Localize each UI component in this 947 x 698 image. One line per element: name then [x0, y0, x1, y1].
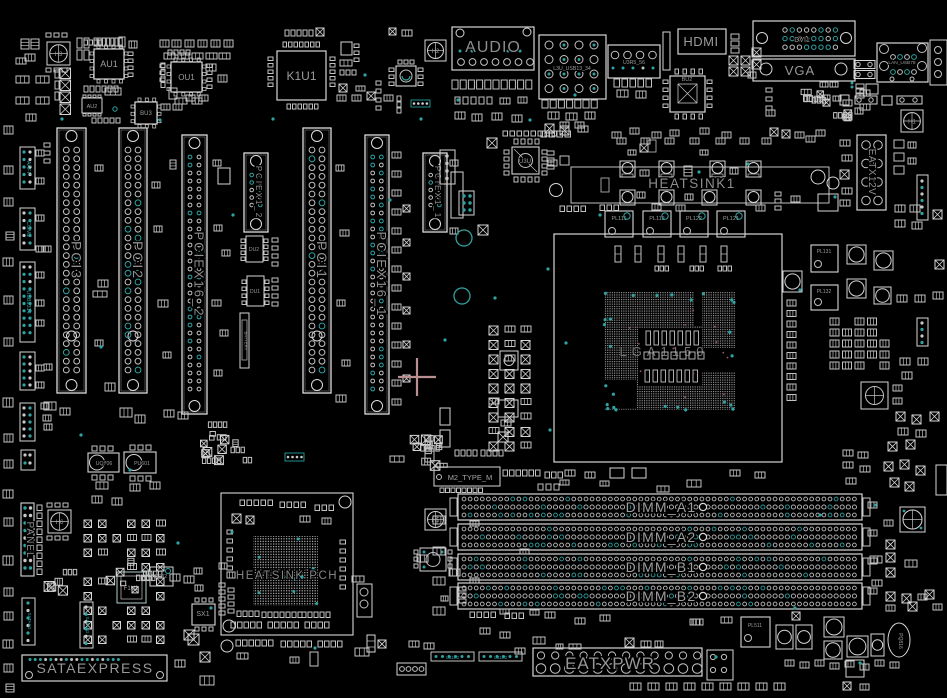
svg-text:PL132: PL132 — [817, 289, 832, 295]
svg-text:DIMM_A1: DIMM_A1 — [626, 499, 697, 515]
svg-text:PL121: PL121 — [723, 216, 739, 222]
svg-text:AUDIO: AUDIO — [465, 39, 521, 56]
svg-text:BATTERY: BATTERY — [244, 332, 249, 351]
svg-text:PCIEX16_1: PCIEX16_1 — [374, 232, 389, 318]
svg-text:M2_TYPE_M: M2_TYPE_M — [448, 473, 493, 482]
svg-text:U3U: U3U — [519, 159, 531, 165]
svg-text:DU2: DU2 — [249, 247, 259, 253]
svg-text:PCIEX16_2: PCIEX16_2 — [192, 232, 207, 318]
svg-text:DVI1: DVI1 — [794, 37, 810, 44]
svg-text:PL122: PL122 — [686, 216, 702, 222]
svg-text:BU2: BU2 — [682, 77, 693, 83]
svg-text:DU1: DU1 — [250, 289, 260, 295]
svg-text:U31G2: U31G2 — [494, 655, 508, 660]
svg-text:PCIEX1_2: PCIEX1_2 — [254, 166, 263, 219]
svg-text:U3R5_56: U3R5_56 — [623, 60, 645, 66]
svg-text:H3: H3 — [55, 52, 63, 58]
svg-text:PL131: PL131 — [817, 249, 832, 255]
svg-text:PANEL: PANEL — [24, 521, 35, 558]
svg-text:USB1314: USB1314 — [25, 290, 31, 314]
svg-text:COM1: COM1 — [25, 221, 31, 237]
svg-text:DIMM_A2: DIMM_A2 — [626, 529, 697, 545]
svg-text:PCI1: PCI1 — [314, 241, 330, 280]
svg-text:LAN_USB78: LAN_USB78 — [888, 60, 916, 66]
svg-text:DIMM_B2: DIMM_B2 — [626, 588, 697, 604]
svg-text:PQ816: PQ816 — [897, 633, 903, 649]
svg-text:SATAEXPRESS: SATAEXPRESS — [36, 660, 153, 676]
svg-text:HDMI: HDMI — [683, 34, 718, 49]
svg-text:AAFP: AAFP — [25, 161, 31, 176]
svg-text:PCI2: PCI2 — [130, 241, 146, 280]
svg-text:H1: H1 — [908, 120, 916, 126]
svg-text:H6: H6 — [56, 520, 64, 526]
svg-text:EATXPWR: EATXPWR — [565, 654, 655, 673]
svg-text:SATA6G: SATA6G — [27, 612, 32, 630]
svg-text:EATX12V: EATX12V — [866, 149, 877, 196]
svg-text:PCIEX1_1: PCIEX1_1 — [433, 166, 442, 219]
svg-text:OU1: OU1 — [178, 73, 195, 82]
svg-text:AU2: AU2 — [87, 104, 98, 110]
svg-text:PCI3: PCI3 — [69, 241, 85, 280]
svg-text:L3U_USB13_34: L3U_USB13_34 — [553, 66, 591, 72]
svg-text:VGA: VGA — [785, 63, 815, 78]
svg-text:SX1: SX1 — [196, 611, 209, 618]
svg-text:K1U1: K1U1 — [286, 69, 316, 83]
svg-text:AU1: AU1 — [100, 59, 118, 69]
svg-text:DIMM_B1: DIMM_B1 — [626, 559, 697, 575]
svg-text:PU601: PU601 — [134, 461, 150, 467]
svg-text:HEATSINK1: HEATSINK1 — [648, 176, 736, 191]
svg-text:H2: H2 — [432, 49, 440, 55]
svg-text:U31G2: U31G2 — [446, 655, 460, 660]
svg-text:BU3: BU3 — [140, 111, 152, 117]
svg-text:SATA6G: SATA6G — [85, 616, 90, 634]
svg-text:UQ706: UQ706 — [96, 461, 113, 467]
svg-text:PL511: PL511 — [748, 623, 762, 629]
svg-text:HEATSINK PCH: HEATSINK PCH — [236, 570, 338, 582]
